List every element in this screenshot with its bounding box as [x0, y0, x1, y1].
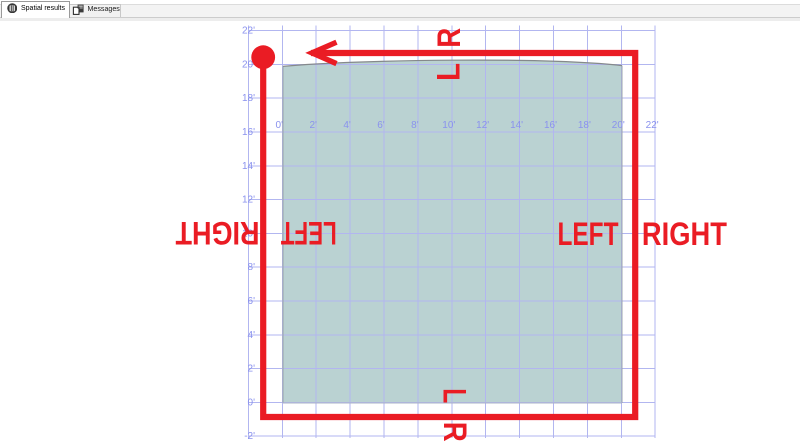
- svg-text:6': 6': [248, 296, 256, 307]
- svg-text:-2': -2': [244, 431, 255, 442]
- svg-text:LEFT: LEFT: [280, 215, 336, 251]
- svg-text:18': 18': [578, 120, 591, 131]
- svg-text:2': 2': [248, 364, 256, 375]
- svg-text:12': 12': [476, 120, 489, 131]
- svg-text:R: R: [431, 28, 467, 48]
- svg-text:RIGHT: RIGHT: [175, 215, 259, 251]
- svg-text:LEFT: LEFT: [558, 216, 619, 252]
- svg-text:4': 4': [248, 330, 256, 341]
- svg-text:22': 22': [646, 120, 659, 131]
- svg-text:14': 14': [242, 161, 255, 172]
- svg-text:22': 22': [242, 26, 255, 37]
- svg-text:4': 4': [343, 120, 351, 131]
- svg-text:20': 20': [612, 120, 625, 131]
- svg-text:14': 14': [510, 120, 523, 131]
- svg-text:18': 18': [242, 93, 255, 104]
- svg-text:RIGHT: RIGHT: [642, 216, 727, 252]
- svg-text:0': 0': [248, 397, 256, 408]
- svg-text:10': 10': [442, 120, 455, 131]
- svg-text:8': 8': [411, 120, 419, 131]
- svg-text:0': 0': [276, 120, 284, 131]
- svg-text:L: L: [436, 388, 472, 403]
- svg-text:16': 16': [242, 127, 255, 138]
- svg-text:6': 6': [377, 120, 385, 131]
- svg-text:2': 2': [309, 120, 317, 131]
- svg-text:12': 12': [242, 195, 255, 206]
- svg-text:R: R: [437, 422, 473, 442]
- svg-text:8': 8': [248, 262, 256, 273]
- svg-text:16': 16': [544, 120, 557, 131]
- svg-text:L: L: [431, 63, 467, 81]
